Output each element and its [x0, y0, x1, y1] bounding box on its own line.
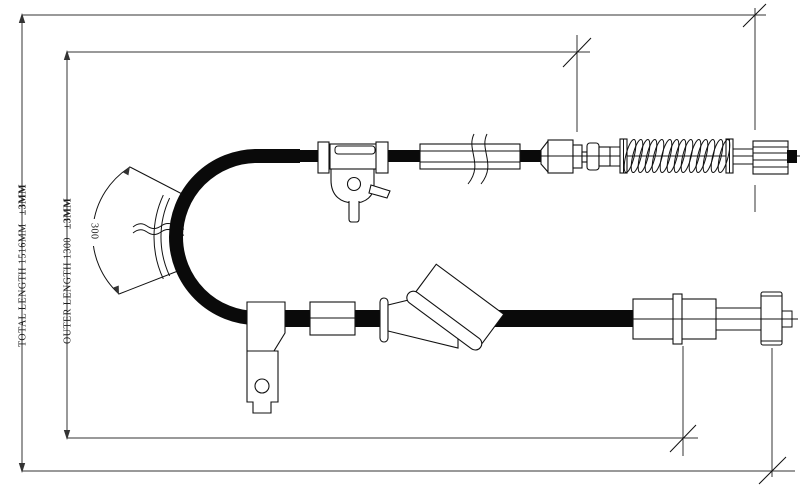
outer-length-tolerance: ±3MM: [63, 198, 74, 229]
total-length-text: TOTAL LENGTH 1516MM ±3MM: [18, 184, 29, 347]
dimension-total-length: TOTAL LENGTH 1516MM ±3MM: [18, 4, 796, 484]
arrow-icon: [123, 165, 133, 176]
outer-length-text: OUTER LENGTH 1300 ±3MM: [63, 198, 74, 344]
outer-sleeve-lower: [310, 302, 355, 335]
bracket-flange-right: [376, 142, 388, 173]
bracket-hole: [255, 379, 269, 393]
cable-technical-drawing: TOTAL LENGTH 1516MM ±3MM OUTER LENGTH 13…: [0, 0, 800, 490]
mounting-bracket: [247, 302, 285, 413]
bracket-flange-left: [318, 142, 329, 173]
equalizer-bracket: [318, 142, 390, 222]
cable-tip: [787, 150, 797, 163]
outer-sleeve-upper: [420, 144, 520, 169]
bracket-hole: [348, 178, 361, 191]
drawing-canvas: TOTAL LENGTH 1516MM ±3MM OUTER LENGTH 13…: [0, 0, 800, 490]
cable-bend: [176, 156, 300, 318]
bracket-tab: [369, 185, 390, 198]
arrow-icon: [113, 286, 122, 297]
upper-end-fitting: [753, 141, 800, 174]
flange-disc: [380, 298, 388, 342]
bend-radius-label: 300: [89, 223, 100, 240]
dimension-outer-length: OUTER LENGTH 1300 ±3MM: [63, 35, 699, 456]
outer-length-label: OUTER LENGTH 1300: [63, 237, 74, 344]
total-length-label: TOTAL LENGTH 1516MM: [18, 223, 29, 347]
total-length-tolerance: ±3MM: [18, 184, 29, 215]
bracket-stem: [349, 201, 359, 222]
